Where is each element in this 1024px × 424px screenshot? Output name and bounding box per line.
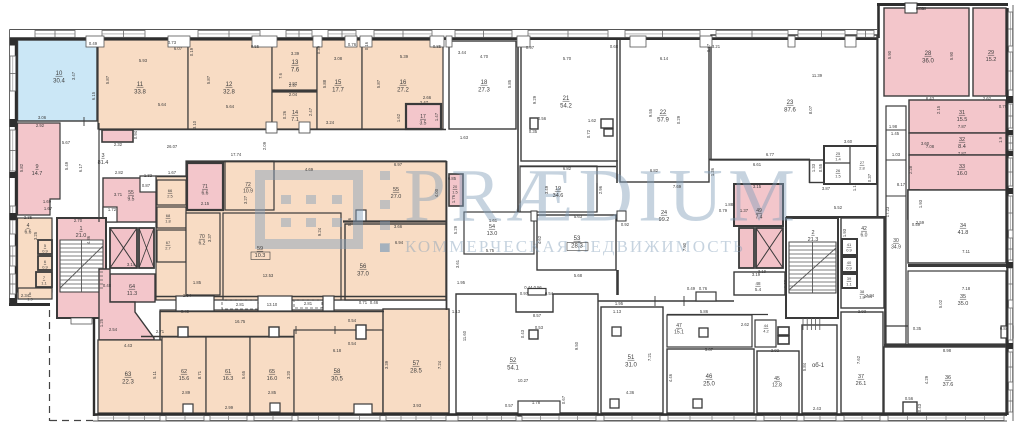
svg-text:37.0: 37.0 <box>357 272 369 278</box>
svg-text:7.11: 7.11 <box>962 249 971 254</box>
svg-text:1.36: 1.36 <box>710 167 715 176</box>
svg-text:0.76: 0.76 <box>348 42 357 47</box>
svg-text:17.74: 17.74 <box>231 152 242 157</box>
svg-text:3.87: 3.87 <box>822 186 831 191</box>
svg-text:7.6: 7.6 <box>291 68 300 74</box>
svg-text:2.35: 2.35 <box>24 215 33 220</box>
svg-text:0.71: 0.71 <box>359 300 368 305</box>
svg-text:11.39: 11.39 <box>812 73 823 78</box>
svg-text:1.8: 1.8 <box>165 219 171 224</box>
svg-text:7.6: 7.6 <box>278 72 283 78</box>
svg-text:66: 66 <box>168 188 173 193</box>
svg-text:1.25: 1.25 <box>99 318 104 327</box>
svg-text:5.87: 5.87 <box>206 75 211 84</box>
svg-text:8.57: 8.57 <box>533 313 542 318</box>
svg-text:0.53: 0.53 <box>535 325 544 330</box>
svg-text:0.39: 0.39 <box>316 45 321 54</box>
svg-text:0.49: 0.49 <box>687 286 696 291</box>
svg-text:3.61: 3.61 <box>455 259 460 268</box>
svg-text:3.39: 3.39 <box>384 360 389 369</box>
svg-text:4.29: 4.29 <box>924 375 929 384</box>
svg-text:5.85: 5.85 <box>507 79 512 88</box>
svg-text:54.2: 54.2 <box>560 104 572 110</box>
svg-text:0.54: 0.54 <box>348 341 357 346</box>
svg-text:3.60: 3.60 <box>844 139 853 144</box>
svg-text:3.47: 3.47 <box>71 71 76 80</box>
svg-text:2.92: 2.92 <box>36 123 45 128</box>
svg-text:0.79: 0.79 <box>999 104 1008 109</box>
svg-text:27.2: 27.2 <box>397 88 409 94</box>
svg-text:0.85: 0.85 <box>433 44 442 49</box>
svg-text:7.18: 7.18 <box>962 286 971 291</box>
svg-text:6.15: 6.15 <box>91 91 96 100</box>
svg-text:5.87: 5.87 <box>705 347 714 352</box>
svg-text:1.9: 1.9 <box>998 136 1003 142</box>
svg-text:33.8: 33.8 <box>134 90 146 96</box>
svg-text:30.5: 30.5 <box>331 377 343 383</box>
svg-text:5.49: 5.49 <box>64 161 69 170</box>
svg-text:5.88: 5.88 <box>322 79 327 88</box>
svg-text:2.32: 2.32 <box>114 142 123 147</box>
svg-text:1.93: 1.93 <box>842 228 847 237</box>
svg-text:0.26: 0.26 <box>282 110 287 119</box>
svg-text:5.52: 5.52 <box>834 205 843 210</box>
svg-text:7.21: 7.21 <box>647 352 652 361</box>
svg-text:1.61: 1.61 <box>489 218 498 223</box>
svg-text:об-1: об-1 <box>812 363 825 369</box>
svg-text:6.97: 6.97 <box>394 162 403 167</box>
svg-text:11.3: 11.3 <box>127 291 137 297</box>
svg-text:14.7: 14.7 <box>32 171 43 177</box>
svg-text:0.29: 0.29 <box>676 115 681 124</box>
svg-text:3.71: 3.71 <box>114 192 123 197</box>
svg-text:0.43: 0.43 <box>917 403 922 412</box>
svg-text:7.87: 7.87 <box>958 151 967 156</box>
svg-text:31.0: 31.0 <box>625 363 637 369</box>
svg-text:3.08: 3.08 <box>334 56 343 61</box>
svg-text:1.95: 1.95 <box>457 280 466 285</box>
svg-text:6.61: 6.61 <box>753 162 762 167</box>
svg-text:1.95: 1.95 <box>615 301 624 306</box>
svg-text:6.94: 6.94 <box>395 240 404 245</box>
svg-text:16.75: 16.75 <box>235 319 246 324</box>
svg-text:41.8: 41.8 <box>958 230 969 236</box>
svg-text:0.97: 0.97 <box>526 45 535 50</box>
svg-text:25: 25 <box>836 151 841 156</box>
svg-text:8.07: 8.07 <box>808 105 813 114</box>
svg-text:26.07: 26.07 <box>167 144 178 149</box>
svg-text:0.9: 0.9 <box>42 265 48 270</box>
svg-text:16.0: 16.0 <box>957 171 968 177</box>
svg-text:0.35: 0.35 <box>913 326 922 331</box>
svg-text:1.03: 1.03 <box>892 152 901 157</box>
svg-text:5.63: 5.63 <box>574 214 583 219</box>
svg-text:6.6: 6.6 <box>202 191 209 197</box>
svg-text:4.36: 4.36 <box>626 390 635 395</box>
svg-text:1.5: 1.5 <box>452 190 458 195</box>
svg-text:0.54: 0.54 <box>348 318 357 323</box>
svg-text:1.93: 1.93 <box>918 199 923 208</box>
svg-text:0.73: 0.73 <box>168 40 177 45</box>
svg-text:15.5: 15.5 <box>957 117 968 123</box>
svg-text:2.5: 2.5 <box>167 194 173 199</box>
svg-text:1.45: 1.45 <box>891 131 900 136</box>
svg-text:5.64: 5.64 <box>226 104 235 109</box>
svg-text:39: 39 <box>847 276 852 281</box>
svg-text:3.66: 3.66 <box>394 224 403 229</box>
svg-text:0.84: 0.84 <box>1000 326 1009 331</box>
svg-text:6.77: 6.77 <box>766 152 775 157</box>
svg-text:4.43: 4.43 <box>124 343 133 348</box>
svg-text:2.70: 2.70 <box>74 218 83 223</box>
svg-text:17.7: 17.7 <box>332 88 344 94</box>
svg-text:5.02: 5.02 <box>938 299 943 308</box>
svg-text:0.56: 0.56 <box>905 396 914 401</box>
svg-text:2.85: 2.85 <box>268 390 277 395</box>
svg-text:4.46: 4.46 <box>668 373 673 382</box>
svg-text:20: 20 <box>453 184 458 189</box>
svg-text:0.16: 0.16 <box>364 41 369 50</box>
svg-text:2.47: 2.47 <box>420 100 429 105</box>
svg-text:2.99: 2.99 <box>225 405 234 410</box>
svg-text:2.47: 2.47 <box>308 107 313 116</box>
svg-text:1.16: 1.16 <box>852 182 857 191</box>
svg-text:0.9: 0.9 <box>42 249 48 254</box>
svg-text:5.76: 5.76 <box>347 217 352 226</box>
svg-text:5.67: 5.67 <box>62 140 71 145</box>
svg-text:4.2: 4.2 <box>763 329 769 334</box>
svg-text:1.69: 1.69 <box>43 199 52 204</box>
svg-text:2.62: 2.62 <box>741 322 750 327</box>
svg-text:37.6: 37.6 <box>943 382 954 388</box>
svg-text:87.6: 87.6 <box>784 108 796 114</box>
svg-text:10.3: 10.3 <box>255 253 266 259</box>
svg-text:13.0: 13.0 <box>487 231 498 237</box>
svg-text:6.43: 6.43 <box>926 96 935 101</box>
svg-text:21.3: 21.3 <box>808 237 819 243</box>
svg-text:1.72: 1.72 <box>108 207 117 212</box>
svg-text:15.6: 15.6 <box>179 376 190 382</box>
svg-text:2.09: 2.09 <box>262 141 267 150</box>
svg-text:0.49: 0.49 <box>89 41 98 46</box>
svg-text:9.24: 9.24 <box>317 227 322 236</box>
svg-text:2.71: 2.71 <box>156 329 165 334</box>
svg-text:10.9: 10.9 <box>243 189 253 195</box>
svg-text:1.1: 1.1 <box>846 282 852 287</box>
svg-text:2.89: 2.89 <box>182 390 191 395</box>
svg-text:5.70: 5.70 <box>563 56 572 61</box>
svg-text:3.39: 3.39 <box>291 51 300 56</box>
svg-text:1.62: 1.62 <box>396 113 401 122</box>
svg-text:2.93: 2.93 <box>858 309 867 314</box>
svg-text:7.87: 7.87 <box>958 124 967 129</box>
svg-text:12.53: 12.53 <box>263 273 274 278</box>
svg-text:6.6: 6.6 <box>25 230 32 236</box>
svg-text:1.32: 1.32 <box>144 173 153 178</box>
svg-text:0.9: 0.9 <box>846 266 852 271</box>
svg-text:1.63: 1.63 <box>460 135 469 140</box>
svg-text:8.17: 8.17 <box>897 182 906 187</box>
svg-text:1.76: 1.76 <box>451 194 456 203</box>
svg-text:6.0: 6.0 <box>861 233 868 239</box>
svg-text:3.06: 3.06 <box>38 115 47 120</box>
svg-text:3.21: 3.21 <box>712 44 721 49</box>
svg-text:5.4: 5.4 <box>755 287 762 292</box>
svg-text:0.56: 0.56 <box>538 116 547 121</box>
svg-text:6.07: 6.07 <box>174 46 183 51</box>
svg-text:0.37: 0.37 <box>706 43 711 52</box>
svg-text:0.9: 0.9 <box>846 248 852 253</box>
svg-text:8.98: 8.98 <box>943 348 952 353</box>
svg-text:0.59: 0.59 <box>912 222 921 227</box>
svg-text:0.57: 0.57 <box>505 403 514 408</box>
svg-text:27.3: 27.3 <box>478 88 490 94</box>
svg-text:28.3: 28.3 <box>571 244 583 250</box>
svg-text:3.25: 3.25 <box>33 231 38 240</box>
svg-text:5.82: 5.82 <box>19 163 24 172</box>
svg-text:1.1: 1.1 <box>41 281 47 286</box>
svg-text:5.68: 5.68 <box>574 273 583 278</box>
svg-text:54.1: 54.1 <box>507 366 519 372</box>
svg-text:7.90: 7.90 <box>682 242 687 251</box>
svg-text:10.27: 10.27 <box>518 378 529 383</box>
svg-text:7.4: 7.4 <box>756 215 763 221</box>
svg-text:7.69: 7.69 <box>673 184 682 189</box>
svg-text:0.43: 0.43 <box>520 329 525 338</box>
svg-text:1.5: 1.5 <box>835 174 841 179</box>
svg-text:0.68: 0.68 <box>610 44 619 49</box>
svg-text:27.0: 27.0 <box>391 194 402 200</box>
svg-text:40: 40 <box>847 260 852 265</box>
svg-text:0.55: 0.55 <box>251 44 260 49</box>
svg-text:6.18: 6.18 <box>333 348 342 353</box>
svg-text:44: 44 <box>764 323 769 328</box>
svg-text:5.87: 5.87 <box>376 79 381 88</box>
svg-text:0.79: 0.79 <box>719 208 728 213</box>
svg-text:0.56: 0.56 <box>916 6 925 11</box>
svg-text:1.62: 1.62 <box>588 118 597 123</box>
svg-text:6.82: 6.82 <box>650 168 659 173</box>
svg-text:16.0: 16.0 <box>267 376 278 382</box>
svg-text:1.68: 1.68 <box>783 279 788 288</box>
svg-text:0.48: 0.48 <box>103 283 112 288</box>
svg-text:2.81: 2.81 <box>236 302 245 307</box>
svg-text:0.76: 0.76 <box>699 286 708 291</box>
svg-text:5.90: 5.90 <box>887 50 892 59</box>
svg-text:2.28: 2.28 <box>908 165 913 174</box>
svg-text:1.67: 1.67 <box>44 206 53 211</box>
svg-text:2.81: 2.81 <box>304 301 313 306</box>
svg-text:57.9: 57.9 <box>657 118 669 124</box>
svg-text:5.11: 5.11 <box>152 370 157 379</box>
svg-text:22.3: 22.3 <box>122 380 134 386</box>
svg-text:2.97: 2.97 <box>289 81 298 86</box>
svg-text:2.15: 2.15 <box>936 105 941 114</box>
svg-text:3.19: 3.19 <box>752 272 761 277</box>
svg-text:6.14: 6.14 <box>660 56 669 61</box>
svg-text:32.8: 32.8 <box>223 90 235 96</box>
svg-text:15.2: 15.2 <box>986 57 997 63</box>
svg-text:3.49: 3.49 <box>544 185 549 194</box>
svg-text:5.90: 5.90 <box>949 51 954 60</box>
svg-text:5.87: 5.87 <box>105 75 110 84</box>
svg-text:6.82: 6.82 <box>563 166 572 171</box>
svg-text:0.35: 0.35 <box>529 129 538 134</box>
svg-text:2.62: 2.62 <box>983 96 992 101</box>
svg-text:2.04: 2.04 <box>289 92 298 97</box>
svg-text:5.75: 5.75 <box>486 248 495 253</box>
svg-text:2.34: 2.34 <box>21 293 30 298</box>
svg-text:2.34: 2.34 <box>864 294 873 299</box>
svg-text:3.27: 3.27 <box>243 195 248 204</box>
svg-text:13.10: 13.10 <box>267 302 278 307</box>
svg-text:8.4: 8.4 <box>958 144 966 150</box>
svg-text:7.1: 7.1 <box>291 117 299 123</box>
svg-text:16.3: 16.3 <box>223 376 234 382</box>
svg-text:2.8: 2.8 <box>859 166 865 171</box>
svg-text:2.82: 2.82 <box>115 170 124 175</box>
svg-text:0.92: 0.92 <box>621 222 630 227</box>
svg-text:2.15: 2.15 <box>201 201 210 206</box>
svg-text:5.64: 5.64 <box>158 102 167 107</box>
svg-text:99.2: 99.2 <box>659 217 670 223</box>
svg-text:0.19: 0.19 <box>189 47 194 56</box>
svg-text:3.14: 3.14 <box>127 262 136 267</box>
svg-text:28.5: 28.5 <box>410 369 422 375</box>
svg-text:0.55: 0.55 <box>818 163 823 172</box>
svg-text:1.47: 1.47 <box>434 112 439 121</box>
svg-text:6.17: 6.17 <box>78 163 83 172</box>
svg-text:1.13: 1.13 <box>452 309 461 314</box>
svg-text:4.00: 4.00 <box>434 188 439 197</box>
svg-text:4.70: 4.70 <box>480 54 489 59</box>
svg-text:5.84: 5.84 <box>802 362 807 371</box>
svg-text:3.10: 3.10 <box>192 120 197 129</box>
svg-text:25.0: 25.0 <box>703 382 715 388</box>
svg-text:5.29: 5.29 <box>453 225 458 234</box>
svg-text:1.13: 1.13 <box>613 309 622 314</box>
svg-text:5.93: 5.93 <box>139 58 148 63</box>
svg-text:36.0: 36.0 <box>922 59 934 65</box>
svg-text:9.5: 9.5 <box>128 197 135 203</box>
svg-text:4.86: 4.86 <box>86 235 91 244</box>
svg-text:2.96: 2.96 <box>598 185 603 194</box>
svg-text:2.7: 2.7 <box>165 246 171 251</box>
svg-text:21.0: 21.0 <box>76 233 87 239</box>
svg-text:67: 67 <box>166 240 171 245</box>
svg-text:3.37: 3.37 <box>207 233 212 242</box>
svg-text:17.23: 17.23 <box>885 206 890 217</box>
svg-text:27: 27 <box>860 160 865 165</box>
svg-text:4.69: 4.69 <box>305 167 314 172</box>
svg-text:3.15: 3.15 <box>753 184 762 189</box>
svg-text:26.1: 26.1 <box>856 381 867 387</box>
svg-text:3.20: 3.20 <box>286 370 291 379</box>
svg-text:26: 26 <box>836 168 841 173</box>
svg-text:5.65: 5.65 <box>241 370 246 379</box>
svg-text:2.92: 2.92 <box>771 348 780 353</box>
svg-text:68: 68 <box>166 213 171 218</box>
svg-text:5.86: 5.86 <box>700 309 709 314</box>
svg-text:1.33: 1.33 <box>811 163 816 172</box>
svg-text:0.97: 0.97 <box>520 291 529 296</box>
svg-text:3.60: 3.60 <box>921 141 930 146</box>
svg-text:1.98: 1.98 <box>889 124 898 129</box>
svg-text:34.6: 34.6 <box>553 193 564 199</box>
svg-text:11.60: 11.60 <box>462 330 467 341</box>
svg-text:0.85: 0.85 <box>448 176 457 181</box>
svg-text:3.24: 3.24 <box>326 120 335 125</box>
svg-text:0.46: 0.46 <box>370 300 379 305</box>
svg-text:41: 41 <box>847 242 852 247</box>
svg-text:8.71: 8.71 <box>197 370 202 379</box>
svg-text:9.55: 9.55 <box>648 108 653 117</box>
svg-text:15.1: 15.1 <box>674 330 684 336</box>
svg-text:35.0: 35.0 <box>958 301 969 307</box>
svg-text:1.85: 1.85 <box>193 280 202 285</box>
svg-text:1.78: 1.78 <box>532 400 541 405</box>
svg-text:0.67: 0.67 <box>561 395 566 404</box>
svg-text:7.62: 7.62 <box>856 355 861 364</box>
svg-text:1.4: 1.4 <box>835 157 841 162</box>
svg-text:3.44: 3.44 <box>458 50 467 55</box>
svg-text:1.37: 1.37 <box>740 208 749 213</box>
svg-text:34.9: 34.9 <box>891 245 901 251</box>
svg-text:2.43: 2.43 <box>813 406 822 411</box>
svg-text:0.87: 0.87 <box>142 183 151 188</box>
svg-text:0.49: 0.49 <box>181 309 190 314</box>
svg-text:0.94: 0.94 <box>133 130 138 139</box>
svg-text:1.67: 1.67 <box>168 170 177 175</box>
svg-text:9.29: 9.29 <box>532 95 537 104</box>
svg-text:9.50: 9.50 <box>574 341 579 350</box>
svg-text:6.2: 6.2 <box>199 241 206 247</box>
svg-text:1.88: 1.88 <box>725 202 734 207</box>
svg-text:0.44 0.56: 0.44 0.56 <box>524 285 542 290</box>
svg-text:0.37: 0.37 <box>867 173 872 182</box>
svg-text:3.5: 3.5 <box>420 121 427 127</box>
svg-text:2.94: 2.94 <box>183 293 192 298</box>
svg-text:3.93: 3.93 <box>413 403 422 408</box>
svg-text:4.62: 4.62 <box>537 235 542 244</box>
svg-text:0.54: 0.54 <box>545 291 554 296</box>
svg-text:81.4: 81.4 <box>98 160 109 166</box>
svg-text:12.8: 12.8 <box>772 383 782 389</box>
svg-text:2.54: 2.54 <box>109 327 118 332</box>
svg-text:48: 48 <box>755 281 761 286</box>
svg-text:0.72: 0.72 <box>586 129 591 138</box>
svg-text:5.39: 5.39 <box>400 54 409 59</box>
svg-text:30.4: 30.4 <box>53 79 65 85</box>
svg-text:7.24: 7.24 <box>437 360 442 369</box>
